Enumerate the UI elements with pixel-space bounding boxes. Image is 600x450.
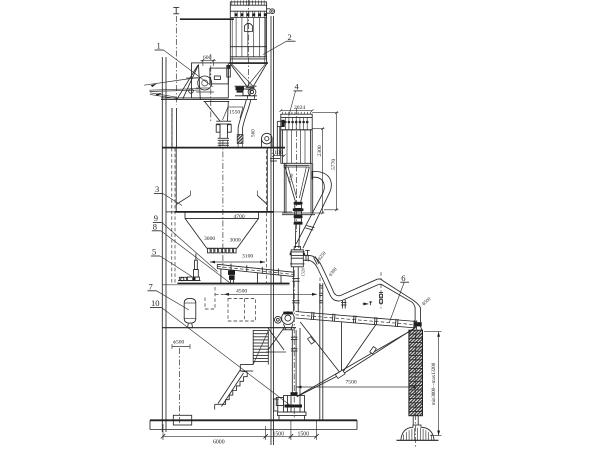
svg-text:min3000—max13200: min3000—max13200 [432, 362, 437, 405]
svg-text:7500: 7500 [346, 380, 357, 386]
svg-text:10: 10 [151, 298, 160, 308]
svg-text:8: 8 [153, 221, 157, 231]
svg-text:3100: 3100 [242, 254, 253, 260]
svg-text:2300: 2300 [317, 145, 323, 156]
svg-text:2: 2 [288, 32, 292, 42]
svg-text:1: 1 [157, 41, 161, 51]
svg-text:4700: 4700 [234, 214, 245, 220]
svg-text:6000: 6000 [213, 440, 225, 446]
svg-text:1500: 1500 [273, 432, 285, 438]
svg-text:1520: 1520 [301, 267, 306, 277]
svg-text:1500: 1500 [298, 432, 310, 438]
svg-text:2100: 2100 [272, 150, 283, 156]
svg-text:ϕ500: ϕ500 [173, 340, 185, 346]
svg-text:5: 5 [152, 247, 156, 257]
svg-text:3000: 3000 [204, 236, 215, 242]
svg-text:560: 560 [251, 129, 257, 137]
svg-text:3000: 3000 [230, 238, 241, 244]
svg-text:7: 7 [149, 281, 153, 291]
svg-text:1550: 1550 [229, 110, 240, 116]
svg-text:6: 6 [401, 273, 405, 283]
svg-text:3: 3 [155, 184, 159, 194]
svg-text:2024: 2024 [294, 105, 305, 111]
svg-text:5770: 5770 [331, 159, 337, 170]
svg-text:4500: 4500 [236, 289, 247, 295]
